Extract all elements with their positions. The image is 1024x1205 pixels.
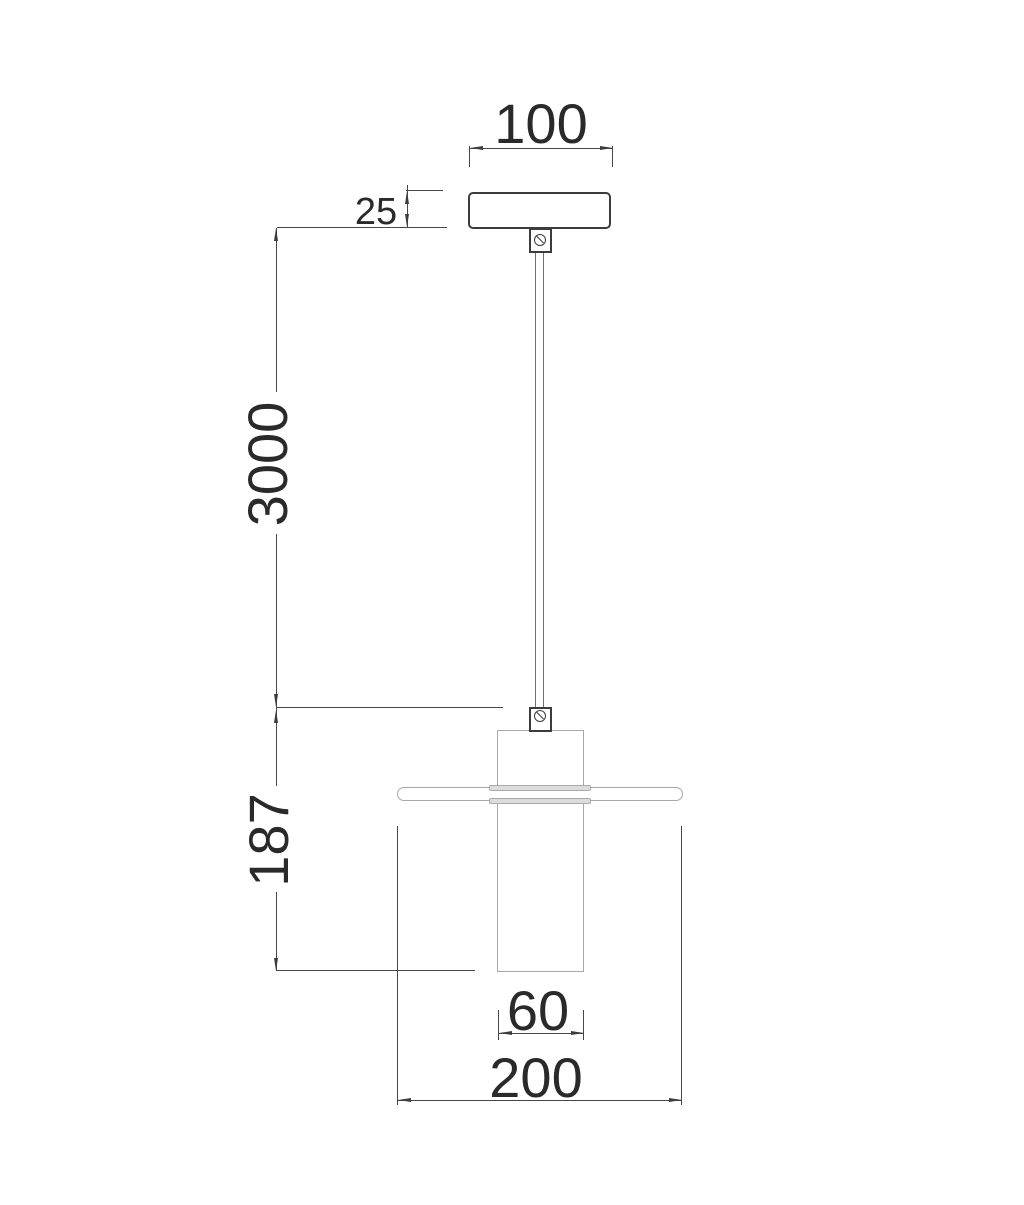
- disc-clamp-top: [489, 785, 591, 791]
- arrowhead-right: [571, 1031, 584, 1035]
- dim-label-canopy-height: 25: [341, 193, 411, 231]
- arrowhead-up: [274, 228, 278, 241]
- arrowhead-left: [470, 146, 483, 150]
- dim-label-suspension-length: 3000: [240, 344, 296, 584]
- dim-label-canopy-width: 100: [461, 96, 621, 152]
- extension-line: [276, 707, 503, 708]
- arrowhead-down: [405, 214, 409, 227]
- arrowhead-left: [499, 1031, 512, 1035]
- dim-line: [470, 148, 613, 149]
- extension-line: [397, 826, 398, 1105]
- arrowhead-right: [669, 1098, 682, 1102]
- arrowhead-left: [398, 1098, 411, 1102]
- arrowhead-up: [405, 191, 409, 204]
- suspension-cord: [535, 253, 544, 708]
- lamp-holder: [497, 730, 584, 787]
- canopy-plate: [468, 192, 611, 229]
- extension-line: [406, 190, 443, 191]
- arrowhead-up: [274, 710, 278, 723]
- pendant-light-dimension-drawing: 100 25 3000 187 60: [0, 0, 1024, 1205]
- dim-label-shade-height: 187: [241, 740, 297, 940]
- inner-shade-cylinder: [497, 795, 584, 972]
- extension-line: [681, 826, 682, 1105]
- extension-line: [276, 970, 475, 971]
- dim-line: [276, 228, 277, 392]
- dim-label-shade-diameter: 200: [446, 1050, 626, 1106]
- arrowhead-down: [274, 694, 278, 707]
- dim-line: [398, 1100, 682, 1101]
- extension-line: [498, 1010, 499, 1040]
- arrowhead-right: [600, 146, 613, 150]
- disc-clamp-bottom: [489, 798, 591, 804]
- extension-line: [277, 227, 447, 228]
- extension-line: [583, 1010, 584, 1040]
